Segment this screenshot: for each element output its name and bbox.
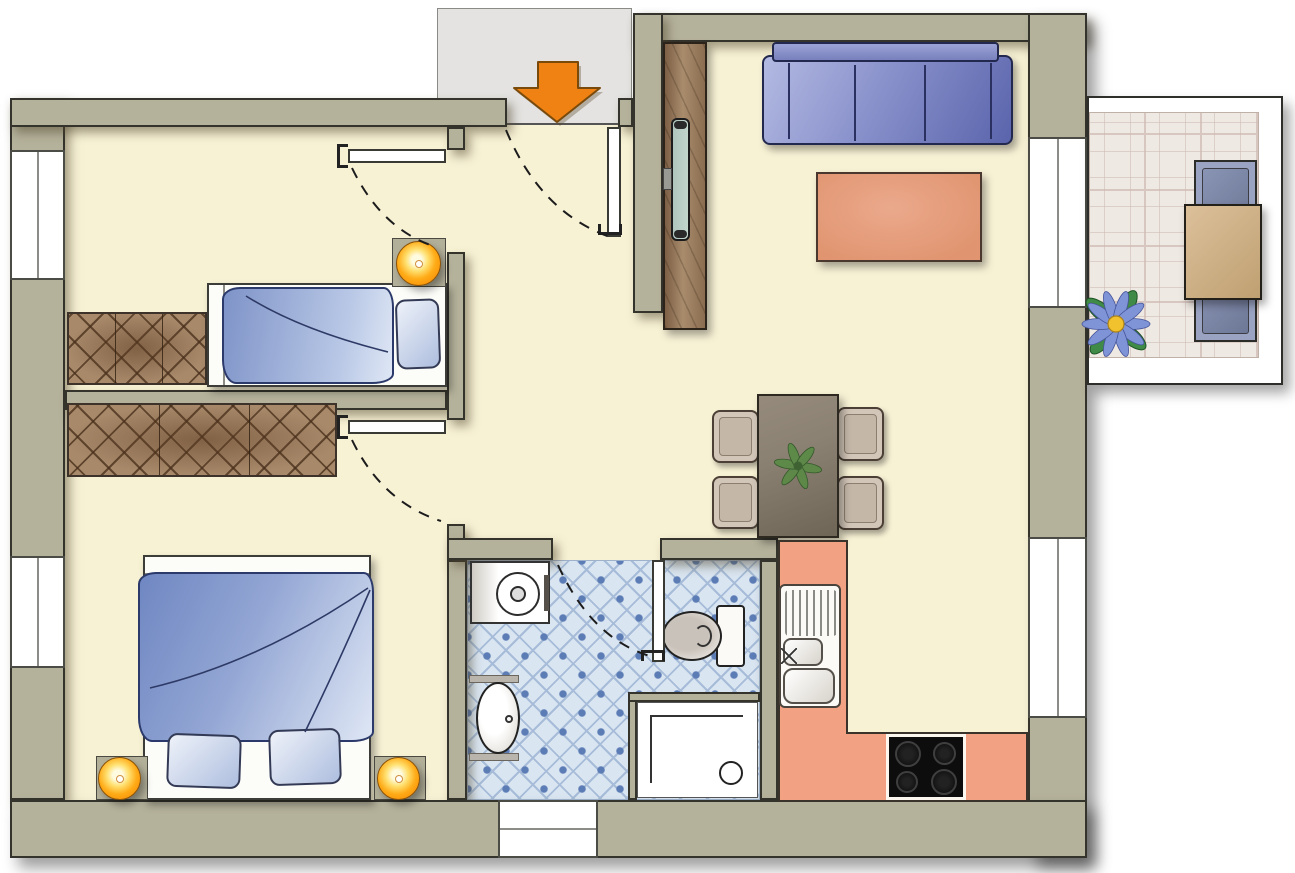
stove-burner-icon: [895, 741, 921, 767]
master-door-leaf: [348, 420, 446, 434]
entrance-door-leaf: [607, 127, 621, 237]
sink-drainer: [785, 590, 837, 636]
wall-living-top: [633, 13, 1087, 42]
sink-faucet-icon: [781, 648, 797, 664]
double-bed-pillow: [268, 728, 342, 786]
balcony-table: [1184, 204, 1262, 300]
window-glass-line: [37, 558, 39, 666]
dining-chair-seat: [844, 483, 877, 523]
lamp-bulb-icon: [116, 775, 124, 783]
sofa-armrest-line: [990, 63, 992, 139]
stove: [886, 734, 966, 800]
wall-entry-stub: [618, 98, 633, 127]
toilet-bowl: [662, 611, 722, 661]
window-glass-line: [500, 828, 596, 830]
window-glass-line: [1057, 539, 1059, 716]
wardrobe-divider: [159, 405, 160, 475]
wall-bath-top-left: [447, 538, 553, 560]
lamp-bulb-icon: [395, 775, 403, 783]
master-door-stop: [337, 415, 348, 439]
sink-basin-large: [783, 668, 835, 704]
entrance-door-stop: [598, 224, 622, 235]
dining-chair: [837, 476, 884, 530]
washing-machine: [470, 561, 550, 624]
double-bed-pillow: [166, 733, 242, 790]
stove-burner-icon: [933, 742, 956, 765]
wardrobe-master-bedroom: [67, 403, 337, 477]
sofa-backrest: [772, 42, 999, 62]
washbasin-drain-icon: [505, 715, 513, 723]
wardrobe-child-room: [67, 312, 207, 385]
washer-drum-center: [510, 586, 526, 602]
tv-mount: [663, 168, 672, 190]
double-bed-duvet: [138, 572, 374, 742]
dining-chair: [712, 410, 759, 463]
wall-living-left: [633, 13, 663, 313]
bedside-lamp: [377, 757, 420, 800]
window-bathroom: [498, 800, 598, 858]
washer-connector: [544, 575, 549, 611]
dining-chair: [837, 407, 884, 461]
window-glass-line: [1057, 139, 1059, 306]
washbasin-ledge: [469, 753, 519, 761]
wardrobe-divider: [162, 314, 163, 383]
wall-bath-top-right: [660, 538, 778, 560]
lamp-bulb-icon: [415, 260, 423, 268]
tv: [671, 118, 690, 241]
bedside-lamp: [396, 241, 441, 286]
dining-chair: [712, 476, 759, 529]
bathroom-door-leaf: [652, 560, 665, 662]
bathroom-door-stop: [641, 650, 665, 661]
balcony-door-window: [1028, 137, 1087, 308]
single-bed-pillow: [395, 298, 441, 369]
child-room-door-stop: [337, 144, 348, 168]
sofa-armrest-line: [788, 63, 790, 139]
drain-icon: [719, 761, 743, 785]
wardrobe-divider: [249, 405, 250, 475]
dining-table: [757, 394, 839, 538]
tv-cabinet: [663, 42, 707, 330]
window-dining: [1028, 537, 1087, 718]
wall-bath-left: [447, 560, 467, 800]
window-master-bedroom: [10, 556, 65, 668]
child-room-door-leaf: [348, 149, 446, 163]
floor-plan: [0, 0, 1295, 873]
tv-bottom-cap: [674, 230, 687, 238]
wall-shower-top: [628, 692, 760, 702]
wall-hall-a: [447, 127, 465, 150]
window-glass-line: [37, 152, 39, 278]
rug: [816, 172, 982, 262]
wall-bath-right: [760, 560, 778, 800]
dining-chair-seat: [844, 414, 877, 454]
wall-top-left: [10, 98, 507, 127]
toilet-seat-line: [694, 625, 712, 647]
washbasin: [476, 682, 520, 754]
dining-chair-seat: [719, 483, 752, 522]
single-bed-duvet: [222, 287, 394, 384]
stove-burner-icon: [931, 769, 957, 795]
window-child-room: [10, 150, 65, 280]
wall-hall-b: [447, 252, 465, 420]
kitchen-sink-unit: [779, 584, 841, 708]
sofa-cushion-line: [924, 65, 926, 141]
wall-shower-left: [628, 700, 637, 800]
tv-top-cap: [674, 121, 687, 129]
dining-chair-seat: [719, 417, 752, 456]
sofa: [762, 55, 1013, 145]
bedside-lamp: [98, 757, 141, 800]
wardrobe-divider: [115, 314, 116, 383]
balcony: [1087, 96, 1283, 385]
sofa-cushion-line: [854, 65, 856, 141]
washer-drum-icon: [496, 572, 540, 616]
shower: [637, 702, 758, 798]
stove-burner-icon: [896, 771, 918, 793]
